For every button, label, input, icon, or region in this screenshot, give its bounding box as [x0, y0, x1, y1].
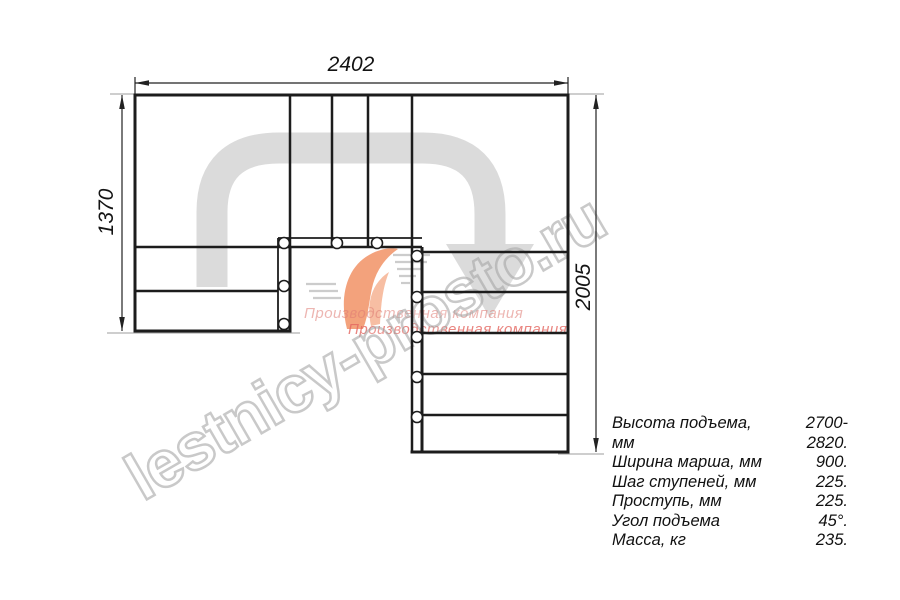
spec-row-tread: Проступь, мм 225. [612, 492, 848, 512]
spec-value: 900. [816, 453, 848, 473]
spec-label: Угол подъема [612, 512, 720, 532]
top-flight-treads [290, 95, 412, 452]
spec-row-step-pitch: Шаг ступеней, мм 225. [612, 473, 848, 493]
dimension-top-label: 2402 [301, 53, 401, 77]
spec-value: 2700-2820. [769, 414, 848, 453]
dimension-right-label: 2005 [572, 241, 596, 333]
spec-row-march-width: Ширина марша, мм 900. [612, 453, 848, 473]
spec-row-angle: Угол подъема 45°. [612, 512, 848, 532]
spec-label: Проступь, мм [612, 492, 722, 512]
right-flight-treads [422, 252, 568, 415]
bolt-circles [279, 238, 423, 423]
spec-label: Масса, кг [612, 531, 686, 551]
spec-value: 235. [816, 531, 848, 551]
spec-value: 225. [816, 473, 848, 493]
dimension-lines [122, 77, 596, 452]
spec-label: Высота подъема, мм [612, 414, 769, 453]
spec-label: Ширина марша, мм [612, 453, 762, 473]
extension-lines [107, 94, 604, 454]
stringers [278, 238, 422, 331]
spec-value: 225. [816, 492, 848, 512]
dimension-arrowheads [119, 80, 599, 452]
spec-label: Шаг ступеней, мм [612, 473, 756, 493]
spec-value: 45°. [818, 512, 848, 532]
specs-table: Высота подъема, мм 2700-2820. Ширина мар… [612, 414, 848, 551]
stair-plan-drawing: Производственная компания Производственн… [0, 0, 900, 600]
spec-row-mass: Масса, кг 235. [612, 531, 848, 551]
spec-row-height: Высота подъема, мм 2700-2820. [612, 414, 848, 453]
dimension-left-label: 1370 [95, 166, 119, 258]
plan-outline [134, 94, 570, 454]
